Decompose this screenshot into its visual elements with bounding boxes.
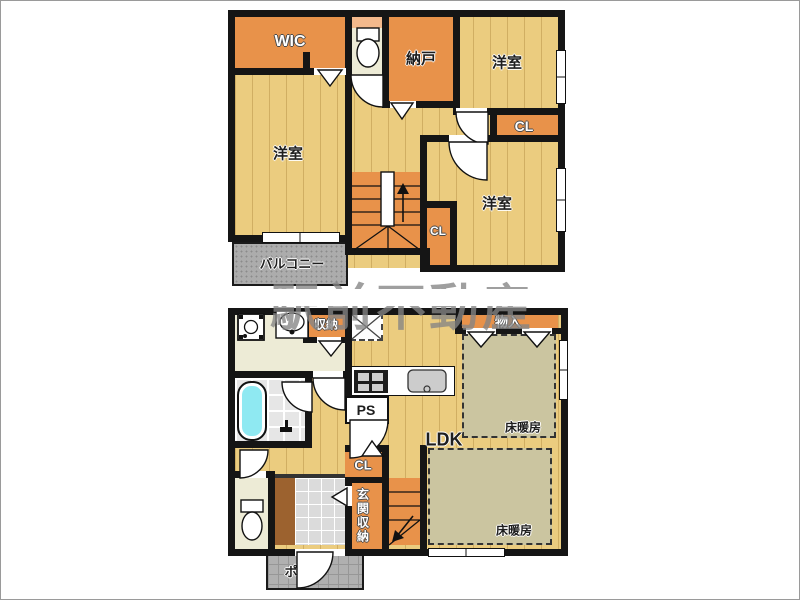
room-label-bedroom-se: 洋室 — [482, 193, 512, 214]
wall — [345, 445, 382, 452]
kitchen-counter — [350, 366, 455, 396]
room-label-entrance-storage: 玄関収納 — [355, 488, 372, 544]
wall — [382, 10, 389, 108]
window — [559, 340, 568, 400]
room-label-wic: WIC — [274, 33, 305, 51]
wall — [228, 441, 312, 448]
wall — [228, 10, 235, 242]
floorplan-canvas: WIC 納戸 洋室 CL 洋室 洋室 CL バルコニー — [0, 0, 800, 600]
room-label-closet-e: CL — [515, 118, 534, 134]
room-label-porch: ポーチ — [284, 562, 323, 581]
wall — [345, 68, 352, 255]
watermark-mask-band — [0, 289, 800, 306]
balcony-sliding-door — [262, 232, 340, 243]
room-label-bedroom-w: 洋室 — [273, 143, 303, 164]
entrance-door-opening — [295, 549, 345, 556]
wall — [382, 445, 389, 556]
entrance-tile — [295, 478, 345, 545]
wall — [228, 10, 565, 17]
room-label-bedroom-ne: 洋室 — [492, 52, 522, 73]
stairs-1f — [389, 478, 420, 545]
wall — [345, 10, 352, 75]
wall — [303, 52, 310, 68]
room-label-nando: 納戸 — [406, 48, 436, 69]
wall — [490, 135, 565, 142]
door-opening — [345, 486, 352, 506]
door-opening — [305, 382, 312, 412]
window — [556, 168, 566, 232]
toilet-2f-counter — [352, 17, 382, 28]
bathtub — [237, 381, 267, 441]
room-label-closet-1f: CL — [354, 458, 371, 473]
wall — [453, 10, 460, 115]
window — [556, 50, 566, 104]
door-opening — [449, 135, 488, 142]
wall — [450, 201, 457, 268]
room-label-ps: PS — [357, 402, 376, 418]
window — [428, 548, 505, 557]
floor-heating-area-b — [428, 448, 552, 545]
wall — [420, 445, 427, 549]
wall — [228, 549, 568, 556]
door-opening — [313, 371, 343, 378]
floor-heating-label-a: 床暖房 — [505, 419, 541, 436]
room-toilet-1f — [235, 478, 268, 549]
door-opening — [456, 108, 487, 115]
door-opening — [390, 101, 416, 108]
wall — [268, 478, 275, 549]
wall — [228, 308, 235, 556]
room-label-closet-s: CL — [430, 224, 446, 238]
step-edge — [275, 474, 345, 478]
entrance-step — [275, 478, 295, 545]
stairs-2f — [352, 172, 420, 252]
wall — [345, 248, 430, 255]
door-opening — [314, 68, 346, 75]
room-label-ldk: LDK — [426, 430, 463, 451]
floor-heating-label-b: 床暖房 — [496, 522, 532, 539]
door-opening — [240, 471, 266, 478]
